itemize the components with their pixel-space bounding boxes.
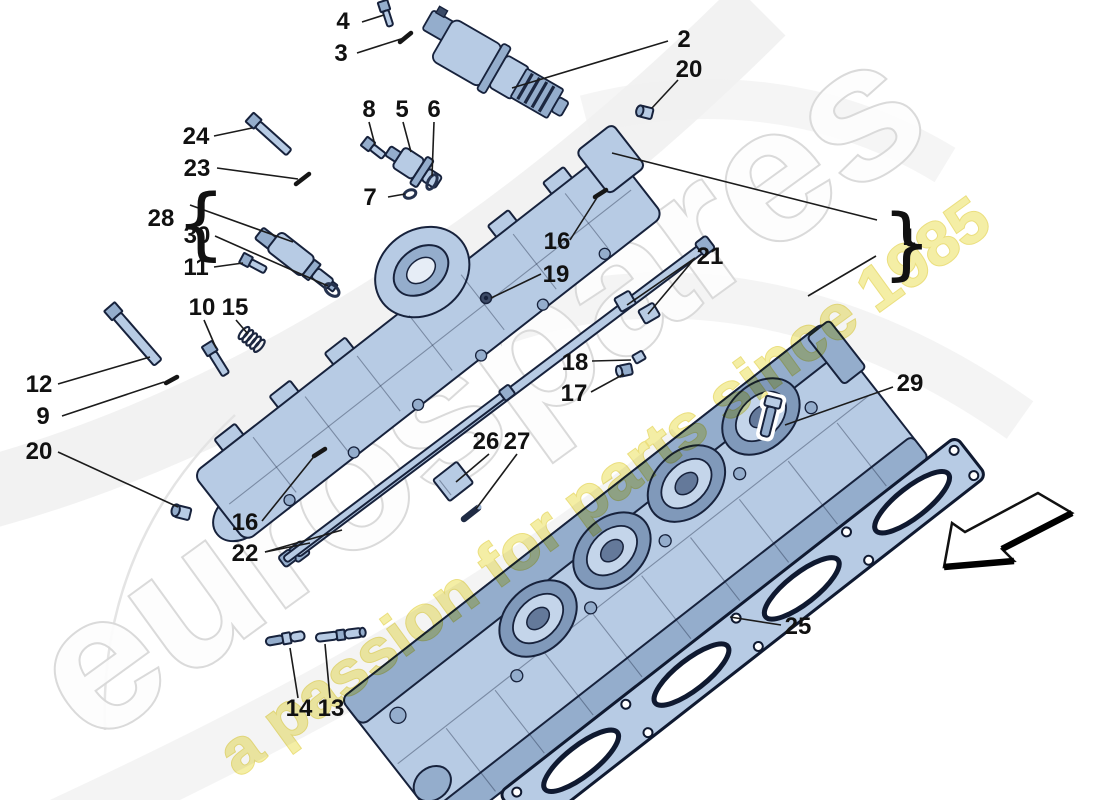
- callout-21: 21: [697, 243, 724, 270]
- callout-20-bottom: 20: [26, 438, 53, 465]
- callout-14: 14: [286, 695, 313, 722]
- callout-5: 5: [395, 96, 408, 123]
- callout-22: 22: [232, 540, 259, 567]
- callout-1: 1: [902, 224, 915, 251]
- callout-30: 30: [184, 222, 211, 249]
- callout-12: 12: [26, 371, 53, 398]
- callout-17: 17: [561, 380, 588, 407]
- callout-4: 4: [336, 8, 350, 35]
- callout-8: 8: [362, 96, 375, 123]
- callout-27: 27: [504, 428, 531, 455]
- callout-9: 9: [36, 403, 49, 430]
- callout-7: 7: [363, 184, 376, 211]
- callout-23: 23: [184, 155, 211, 182]
- callout-24: 24: [183, 123, 210, 150]
- diagram-canvas: eurospares: [0, 0, 1100, 800]
- callout-11: 11: [183, 254, 208, 281]
- callout-15: 15: [222, 294, 249, 321]
- callout-26: 26: [473, 428, 500, 455]
- callout-3: 3: [334, 40, 347, 67]
- callout-16-top: 16: [544, 228, 571, 255]
- callout-25: 25: [785, 613, 812, 640]
- nut-19: [481, 293, 492, 304]
- callout-29: 29: [897, 370, 924, 397]
- callout-2: 2: [677, 26, 690, 53]
- callout-10: 10: [189, 294, 216, 321]
- callout-6: 6: [427, 96, 440, 123]
- callout-13: 13: [318, 695, 345, 722]
- callout-20-top: 20: [676, 56, 703, 83]
- callout-16-bottom: 16: [232, 509, 259, 536]
- plug-17: [615, 363, 633, 377]
- callout-19: 19: [543, 261, 570, 288]
- callout-28: 28: [148, 205, 175, 232]
- callout-18: 18: [562, 349, 589, 376]
- parts-diagram-page: eurospares: [0, 0, 1100, 800]
